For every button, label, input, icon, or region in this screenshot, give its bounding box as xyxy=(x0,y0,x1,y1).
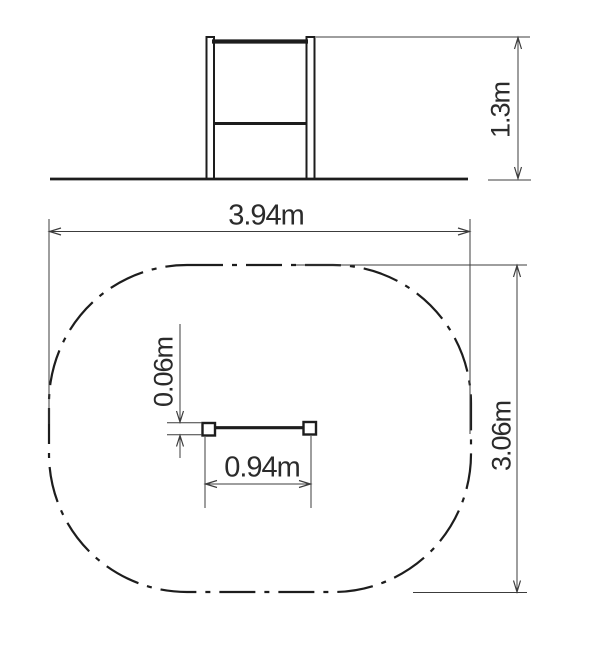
dim-label-bar-length: 0.94m xyxy=(224,454,300,483)
plan-view xyxy=(49,219,527,593)
dim-label-bar-offset: 0.06m xyxy=(151,337,178,407)
dim-label-zone-width: 3.94m xyxy=(228,202,304,231)
dim-label-zone-depth: 3.06m xyxy=(489,401,516,471)
technical-drawing: 3.94m 0.94m 1.3m 3.06m 0.06m xyxy=(0,0,600,663)
right-post-footprint xyxy=(304,422,317,435)
elevation-view xyxy=(50,37,531,180)
left-post xyxy=(207,37,215,179)
dim-label-elevation-height: 1.3m xyxy=(488,82,515,138)
zone-width-dimension xyxy=(49,219,470,434)
left-post-footprint xyxy=(203,423,216,436)
right-post xyxy=(307,37,315,179)
